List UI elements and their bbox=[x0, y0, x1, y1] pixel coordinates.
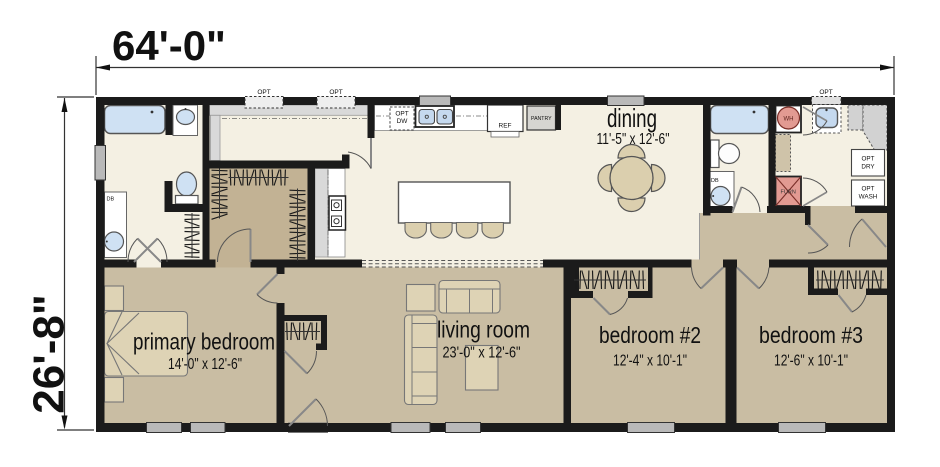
svg-text:OPT: OPT bbox=[862, 186, 875, 193]
svg-text:11'-5" x 12'-6": 11'-5" x 12'-6" bbox=[597, 131, 670, 148]
svg-text:dining: dining bbox=[607, 103, 657, 133]
svg-text:23'-0" x 12'-6": 23'-0" x 12'-6" bbox=[443, 345, 521, 362]
svg-text:OPT: OPT bbox=[257, 89, 270, 96]
svg-text:26'-8": 26'-8" bbox=[25, 294, 74, 413]
svg-text:DRY: DRY bbox=[861, 164, 875, 171]
svg-text:living room: living room bbox=[437, 317, 530, 343]
svg-text:REF: REF bbox=[499, 123, 512, 130]
svg-text:bedroom #3: bedroom #3 bbox=[759, 322, 863, 348]
svg-text:bedroom #2: bedroom #2 bbox=[599, 322, 701, 348]
svg-text:DW: DW bbox=[397, 118, 409, 125]
svg-text:OPT: OPT bbox=[819, 89, 832, 96]
svg-text:WH: WH bbox=[784, 117, 794, 123]
svg-text:OPT: OPT bbox=[395, 111, 408, 118]
svg-text:DB: DB bbox=[711, 178, 719, 184]
svg-text:OPT: OPT bbox=[862, 156, 875, 163]
svg-text:64'-0": 64'-0" bbox=[112, 22, 226, 69]
svg-text:14'-0" x 12'-6": 14'-0" x 12'-6" bbox=[168, 356, 242, 373]
svg-text:primary bedroom: primary bedroom bbox=[133, 329, 275, 355]
svg-text:12'-6" x 10'-1": 12'-6" x 10'-1" bbox=[774, 353, 848, 370]
svg-text:PANTRY: PANTRY bbox=[531, 116, 552, 122]
svg-text:DB: DB bbox=[107, 197, 115, 203]
svg-text:FURN: FURN bbox=[781, 190, 796, 196]
svg-text:WASH: WASH bbox=[859, 194, 878, 201]
svg-text:12'-4" x 10'-1": 12'-4" x 10'-1" bbox=[613, 353, 687, 370]
svg-text:OPT: OPT bbox=[329, 89, 342, 96]
